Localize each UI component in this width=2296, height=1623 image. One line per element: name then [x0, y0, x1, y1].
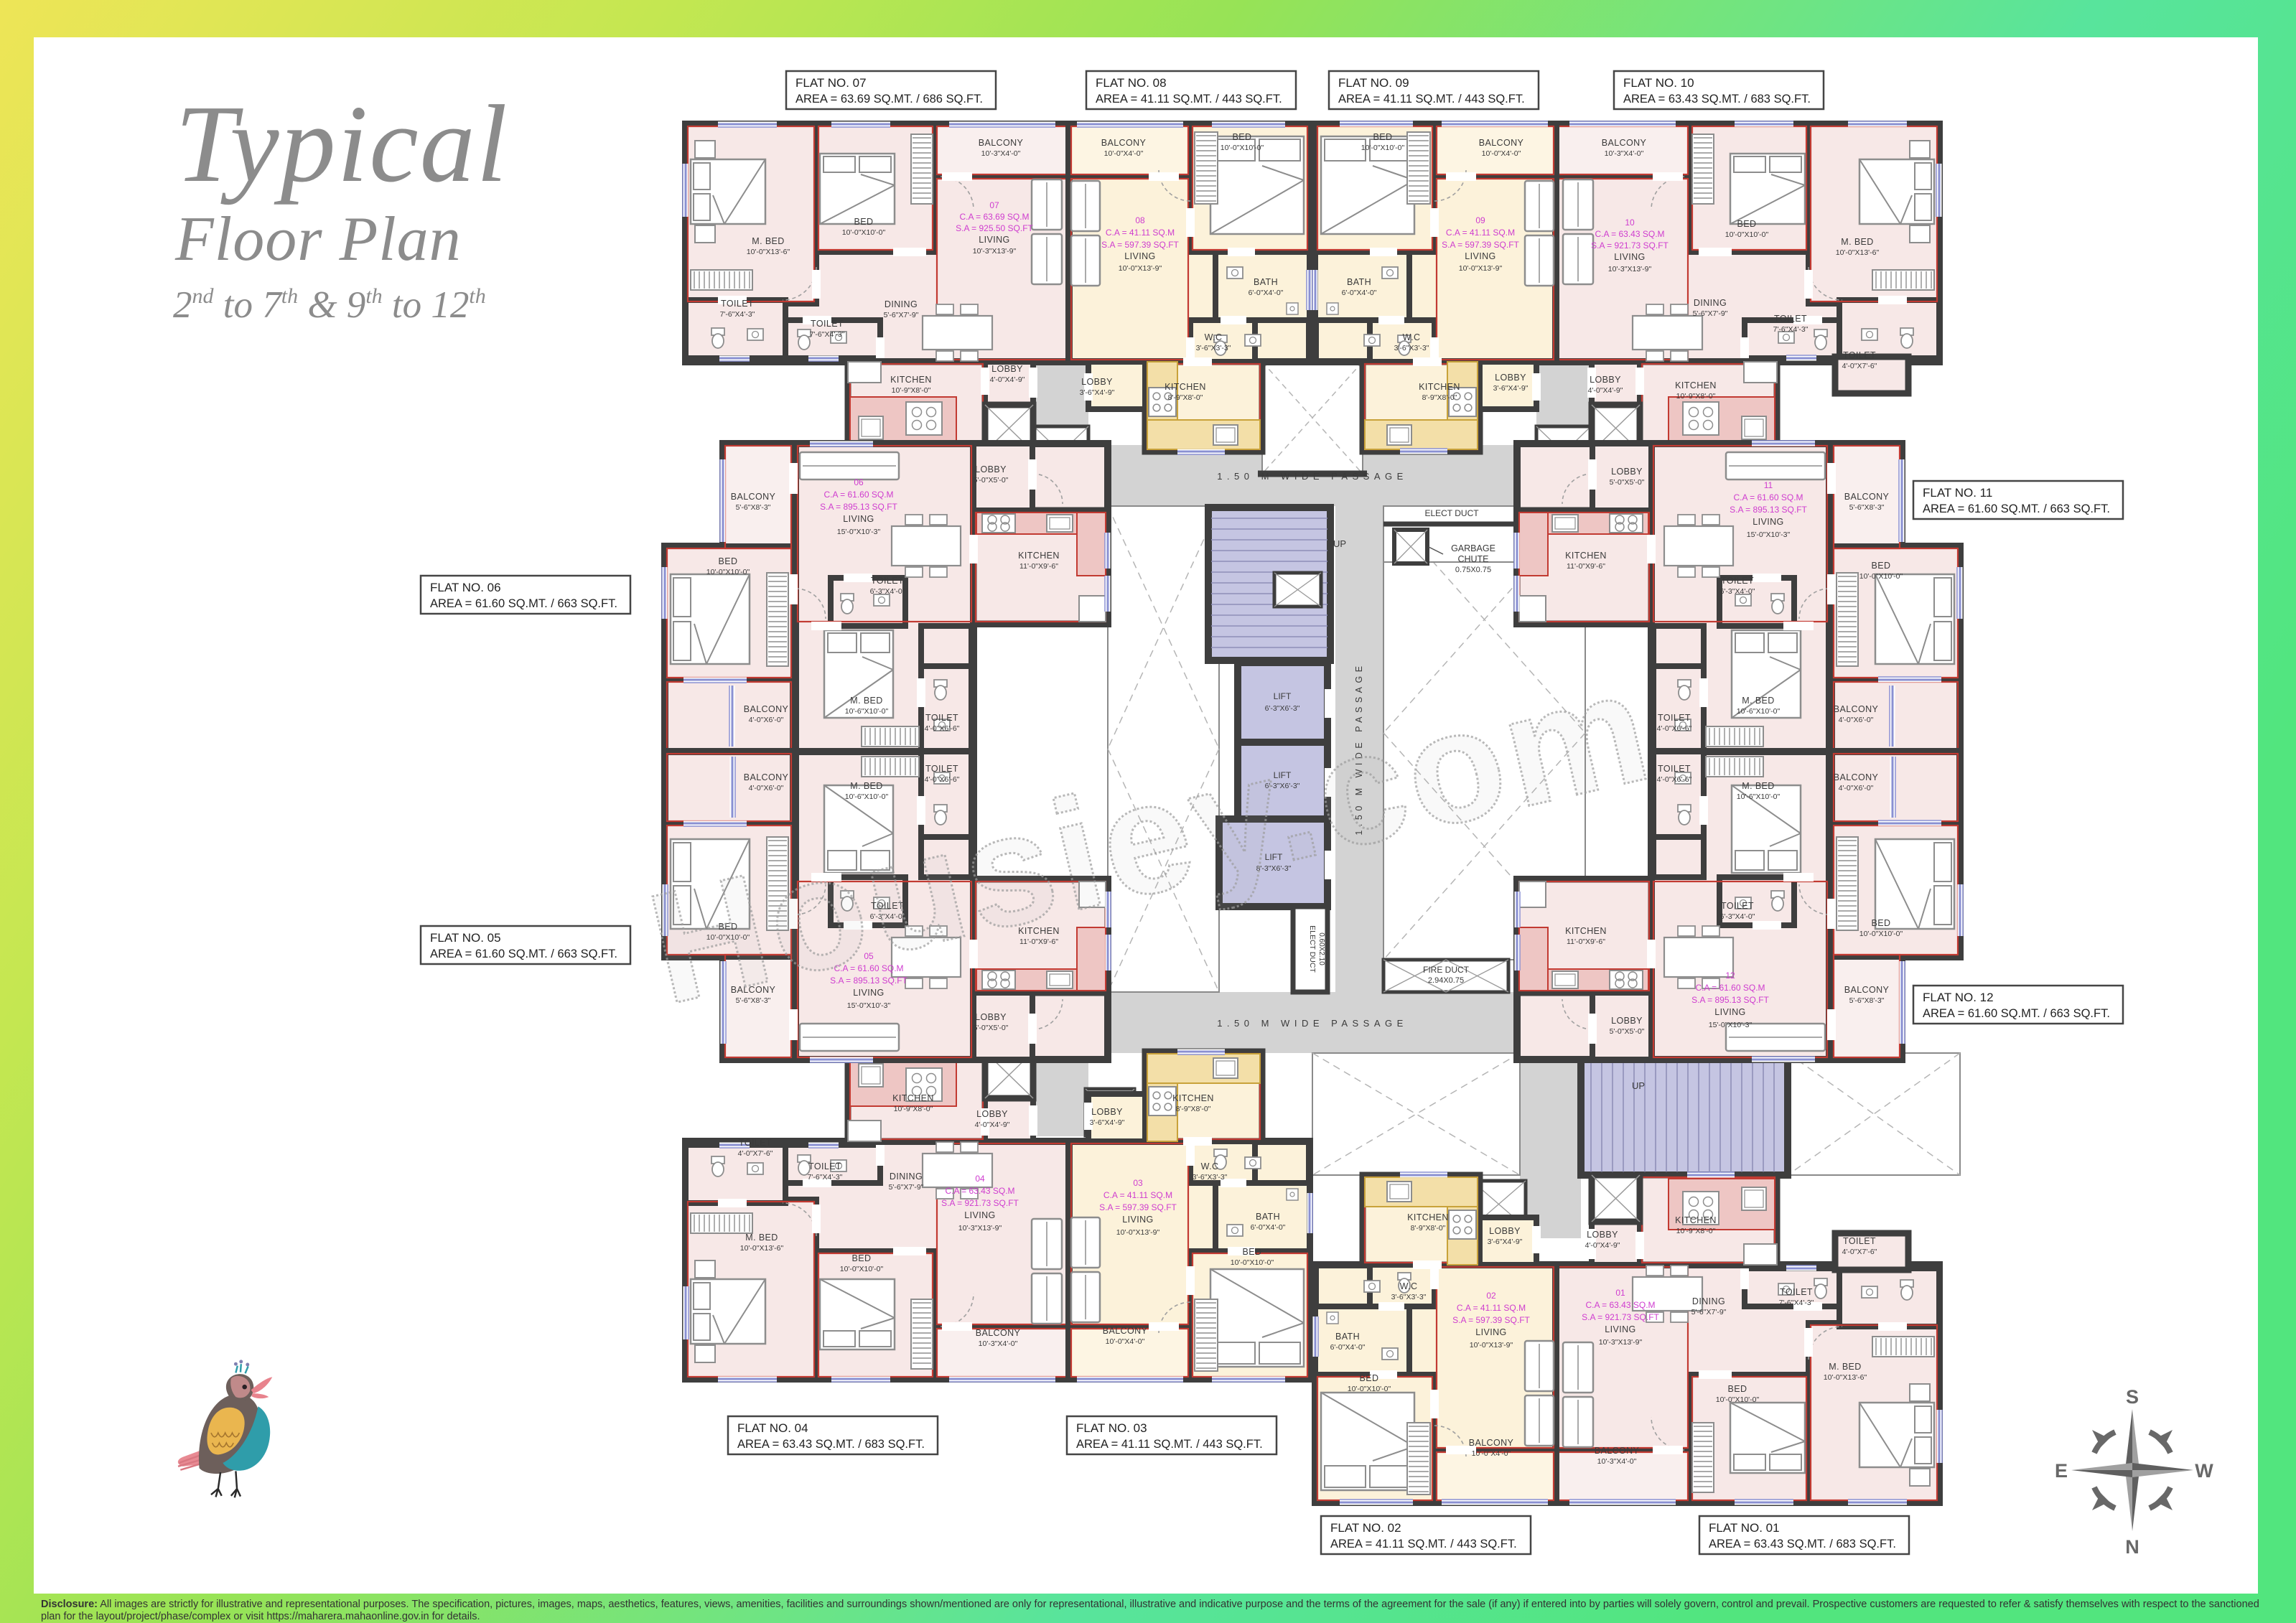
svg-text:10'-0"X13'-9": 10'-0"X13'-9"	[1119, 264, 1162, 273]
svg-text:Typical: Typical	[175, 83, 509, 205]
svg-text:AREA = 63.43 SQ.MT. / 683 SQ.F: AREA = 63.43 SQ.MT. / 683 SQ.FT.	[1709, 1538, 1896, 1550]
svg-text:W.C: W.C	[1400, 1281, 1418, 1291]
svg-text:TOILET: TOILET	[1843, 350, 1876, 360]
svg-text:LIFT: LIFT	[1274, 691, 1292, 701]
svg-text:6'-0"X4'-0": 6'-0"X4'-0"	[1251, 1223, 1286, 1232]
svg-text:TOILET: TOILET	[871, 576, 904, 586]
svg-text:M. BED: M. BED	[745, 1233, 778, 1243]
svg-text:BALCONY: BALCONY	[976, 1328, 1021, 1338]
svg-text:4'-0"X4'-9": 4'-0"X4'-9"	[1585, 1241, 1620, 1250]
svg-text:10'-0"X10'-0": 10'-0"X10'-0"	[1221, 144, 1264, 152]
svg-text:09: 09	[1475, 215, 1485, 225]
svg-text:LIVING: LIVING	[1605, 1324, 1635, 1334]
svg-text:6'-3"X6'-3": 6'-3"X6'-3"	[1265, 704, 1300, 713]
svg-text:3'-6"X4'-9": 3'-6"X4'-9"	[1080, 388, 1115, 397]
svg-text:AREA = 61.60 SQ.MT. / 663 SQ.F: AREA = 61.60 SQ.MT. / 663 SQ.FT.	[1923, 1007, 2110, 1020]
svg-text:4'-0"X6'-0": 4'-0"X6'-0"	[1839, 784, 1874, 792]
svg-text:15'-0"X10'-3": 15'-0"X10'-3"	[847, 1001, 891, 1010]
svg-text:KITCHEN: KITCHEN	[1018, 551, 1060, 561]
svg-text:DINING: DINING	[885, 299, 918, 309]
svg-text:FLAT NO. 03: FLAT NO. 03	[1076, 1421, 1147, 1435]
svg-text:E: E	[2055, 1460, 2068, 1482]
svg-text:TOILET: TOILET	[1780, 1287, 1813, 1297]
svg-text:12: 12	[1725, 970, 1735, 981]
svg-text:10'-3"X4'-0": 10'-3"X4'-0"	[1597, 1457, 1637, 1466]
svg-text:Floor Plan: Floor Plan	[174, 205, 462, 274]
svg-text:S.A = 895.13 SQ.FT: S.A = 895.13 SQ.FT	[1691, 995, 1769, 1005]
svg-text:BALCONY: BALCONY	[1844, 985, 1890, 995]
svg-text:KITCHEN: KITCHEN	[1419, 382, 1460, 392]
svg-text:C.A = 63.69 SQ.M: C.A = 63.69 SQ.M	[959, 212, 1029, 222]
svg-text:3'-6"X4'-9": 3'-6"X4'-9"	[1488, 1238, 1523, 1246]
svg-text:M. BED: M. BED	[1742, 696, 1774, 706]
svg-text:C.A = 61.60 SQ.M: C.A = 61.60 SQ.M	[823, 490, 893, 500]
svg-text:5'-6"X7'-9": 5'-6"X7'-9"	[1691, 1308, 1727, 1316]
svg-text:TOILET: TOILET	[721, 299, 754, 309]
svg-text:FLAT NO. 02: FLAT NO. 02	[1330, 1521, 1401, 1535]
svg-text:6'-0"X4'-0": 6'-0"X4'-0"	[1342, 289, 1377, 297]
svg-text:LIVING: LIVING	[964, 1210, 995, 1220]
svg-text:1.50 M WIDE PASSAGE: 1.50 M WIDE PASSAGE	[1217, 1018, 1408, 1029]
svg-text:4'-0"X6'-6": 4'-0"X6'-6"	[1657, 775, 1692, 784]
svg-text:10'-0"X13'-6": 10'-0"X13'-6"	[747, 248, 790, 256]
svg-text:5'-0"X5'-0": 5'-0"X5'-0"	[1610, 478, 1645, 487]
svg-text:0.75X0.75: 0.75X0.75	[1455, 566, 1491, 574]
svg-text:10'-3"X4'-0": 10'-3"X4'-0"	[979, 1339, 1018, 1348]
svg-text:BALCONY: BALCONY	[1602, 138, 1647, 148]
svg-text:5'-6"X8'-3": 5'-6"X8'-3"	[1849, 996, 1885, 1005]
svg-text:01: 01	[1615, 1288, 1625, 1298]
svg-text:LOBBY: LOBBY	[1611, 1016, 1643, 1026]
svg-text:4'-0"X6'-6": 4'-0"X6'-6"	[925, 775, 960, 784]
svg-text:LIVING: LIVING	[1465, 251, 1495, 261]
svg-text:8'-9"X8'-0": 8'-9"X8'-0"	[1168, 393, 1203, 402]
svg-text:BALCONY: BALCONY	[1469, 1438, 1514, 1448]
svg-text:10'-6"X10'-0": 10'-6"X10'-0"	[845, 707, 889, 716]
svg-text:plan for the layout/project/ph: plan for the layout/project/phase/comple…	[41, 1611, 480, 1622]
svg-text:ELECT DUCT: ELECT DUCT	[1424, 508, 1479, 518]
svg-text:3'-6"X4'-9": 3'-6"X4'-9"	[1090, 1118, 1125, 1127]
svg-text:ELECT DUCT: ELECT DUCT	[1308, 925, 1317, 973]
svg-text:AREA = 63.43 SQ.MT. / 683 SQ.F: AREA = 63.43 SQ.MT. / 683 SQ.FT.	[1623, 93, 1811, 106]
svg-text:S.A = 921.73 SQ.FT: S.A = 921.73 SQ.FT	[1582, 1312, 1659, 1322]
svg-text:04: 04	[975, 1174, 985, 1184]
svg-text:AREA = 61.60 SQ.MT. / 663 SQ.F: AREA = 61.60 SQ.MT. / 663 SQ.FT.	[1923, 502, 2110, 515]
svg-text:DINING: DINING	[1692, 1296, 1725, 1306]
svg-text:15'-0"X10'-3": 15'-0"X10'-3"	[1747, 530, 1791, 539]
svg-text:FLAT NO. 07: FLAT NO. 07	[795, 76, 867, 90]
svg-text:KITCHEN: KITCHEN	[892, 1093, 934, 1103]
svg-text:C.A = 41.11 SQ.M: C.A = 41.11 SQ.M	[1106, 228, 1175, 238]
svg-text:BED: BED	[1360, 1373, 1379, 1383]
svg-text:S.A = 597.39 SQ.FT: S.A = 597.39 SQ.FT	[1442, 240, 1519, 250]
svg-text:S.A = 597.39 SQ.FT: S.A = 597.39 SQ.FT	[1101, 240, 1179, 250]
svg-text:S: S	[2126, 1386, 2139, 1408]
svg-text:BATH: BATH	[1254, 277, 1278, 287]
svg-text:5'-6"X7'-9": 5'-6"X7'-9"	[889, 1183, 924, 1192]
svg-text:AREA = 63.69 SQ.MT. / 686 SQ.F: AREA = 63.69 SQ.MT. / 686 SQ.FT.	[795, 93, 983, 106]
svg-text:7'-6"X4'-3": 7'-6"X4'-3"	[720, 310, 755, 319]
svg-text:FIRE DUCT: FIRE DUCT	[1423, 965, 1470, 975]
svg-text:BALCONY: BALCONY	[1101, 138, 1147, 148]
svg-text:C.A = 61.60 SQ.M: C.A = 61.60 SQ.M	[1733, 492, 1803, 502]
svg-text:TOILET: TOILET	[811, 319, 844, 329]
svg-text:BALCONY: BALCONY	[979, 138, 1024, 148]
svg-text:11: 11	[1764, 480, 1773, 490]
svg-text:10'-0"X4'-0": 10'-0"X4'-0"	[1472, 1449, 1511, 1458]
svg-text:S.A = 597.39 SQ.FT: S.A = 597.39 SQ.FT	[1099, 1202, 1177, 1212]
svg-text:BATH: BATH	[1256, 1212, 1280, 1222]
svg-text:6'-0"X4'-0": 6'-0"X4'-0"	[1330, 1343, 1366, 1352]
svg-text:8'-9"X8'-0": 8'-9"X8'-0"	[1411, 1224, 1446, 1233]
svg-text:M. BED: M. BED	[1742, 781, 1774, 791]
svg-text:M. BED: M. BED	[850, 781, 882, 791]
svg-text:11'-0"X9'-6": 11'-0"X9'-6"	[1567, 562, 1605, 571]
svg-text:M. BED: M. BED	[1841, 237, 1873, 247]
svg-text:5'-6"X7'-9": 5'-6"X7'-9"	[1693, 309, 1728, 318]
svg-text:02: 02	[1486, 1291, 1496, 1301]
svg-text:DINING: DINING	[890, 1171, 923, 1182]
svg-text:6'-3"X4'-0": 6'-3"X4'-0"	[1720, 912, 1755, 921]
svg-text:6'-3"X4'-0": 6'-3"X4'-0"	[870, 587, 905, 596]
svg-text:W.C: W.C	[1205, 332, 1223, 342]
svg-text:AREA = 61.60 SQ.MT. / 663 SQ.F: AREA = 61.60 SQ.MT. / 663 SQ.FT.	[430, 597, 617, 610]
svg-text:3'-6"X4'-9": 3'-6"X4'-9"	[1493, 384, 1529, 393]
svg-text:4'-0"X7'-6": 4'-0"X7'-6"	[1842, 1248, 1877, 1256]
svg-text:10'-3"X4'-0": 10'-3"X4'-0"	[981, 149, 1021, 158]
svg-text:7'-6"X4'-3": 7'-6"X4'-3"	[808, 1173, 843, 1182]
svg-text:S.A = 921.73 SQ.FT: S.A = 921.73 SQ.FT	[1591, 240, 1669, 251]
svg-text:FLAT NO. 12: FLAT NO. 12	[1923, 991, 1994, 1004]
svg-text:10'-0"X10'-0": 10'-0"X10'-0"	[1231, 1258, 1274, 1267]
svg-text:C.A = 41.11 SQ.M: C.A = 41.11 SQ.M	[1457, 1303, 1526, 1313]
svg-text:10'-9"X8'-0": 10'-9"X8'-0"	[1676, 1227, 1716, 1235]
svg-text:4'-0"X4'-9": 4'-0"X4'-9"	[975, 1121, 1010, 1129]
svg-text:KITCHEN: KITCHEN	[890, 375, 932, 385]
svg-text:BALCONY: BALCONY	[1844, 492, 1890, 502]
svg-text:TOILET: TOILET	[1843, 1236, 1876, 1246]
svg-text:FLAT NO. 04: FLAT NO. 04	[737, 1421, 808, 1435]
svg-text:TOILET: TOILET	[1658, 713, 1691, 723]
svg-text:LOBBY: LOBBY	[1081, 377, 1113, 387]
svg-text:TOILET: TOILET	[925, 713, 958, 723]
svg-text:10'-6"X10'-0": 10'-6"X10'-0"	[1737, 707, 1781, 716]
svg-text:M. BED: M. BED	[752, 236, 784, 246]
svg-text:BALCONY: BALCONY	[744, 772, 789, 782]
svg-text:N: N	[2125, 1536, 2139, 1558]
svg-text:3'-6"X3'-3": 3'-6"X3'-3"	[1391, 1293, 1427, 1301]
svg-text:4'-0"X4'-9": 4'-0"X4'-9"	[1588, 386, 1623, 395]
svg-text:LIVING: LIVING	[843, 514, 874, 524]
svg-text:06: 06	[854, 477, 864, 487]
svg-text:BALCONY: BALCONY	[744, 704, 789, 714]
svg-text:BALCONY: BALCONY	[1595, 1446, 1640, 1456]
svg-text:CHUTE: CHUTE	[1457, 554, 1488, 564]
svg-text:BALCONY: BALCONY	[1834, 772, 1879, 782]
svg-text:15'-0"X10'-3": 15'-0"X10'-3"	[1709, 1021, 1753, 1029]
svg-text:7'-6"X4'-3": 7'-6"X4'-3"	[810, 330, 845, 339]
svg-text:10'-6"X10'-0": 10'-6"X10'-0"	[845, 792, 889, 801]
svg-text:TOILET: TOILET	[1721, 901, 1754, 911]
svg-text:10'-3"X13'-9": 10'-3"X13'-9"	[973, 247, 1017, 256]
svg-text:4'-0"X6'-6": 4'-0"X6'-6"	[1657, 724, 1692, 733]
svg-text:BED: BED	[1233, 132, 1252, 142]
svg-text:LOBBY: LOBBY	[975, 464, 1007, 474]
svg-text:2nd to 7th & 9th to 12th: 2nd to 7th & 9th to 12th	[173, 284, 486, 326]
svg-text:C.A = 41.11 SQ.M: C.A = 41.11 SQ.M	[1446, 228, 1515, 238]
svg-text:4'-0"X7'-6": 4'-0"X7'-6"	[738, 1149, 773, 1158]
svg-text:10'-3"X4'-0": 10'-3"X4'-0"	[1605, 149, 1644, 158]
svg-text:0.60X2.10: 0.60X2.10	[1317, 932, 1325, 965]
svg-text:10'-3"X13'-9": 10'-3"X13'-9"	[1608, 265, 1652, 273]
svg-text:10'-0"X13'-9": 10'-0"X13'-9"	[1459, 264, 1503, 273]
svg-text:08: 08	[1135, 215, 1145, 225]
svg-text:LOBBY: LOBBY	[1587, 1230, 1618, 1240]
svg-text:BALCONY: BALCONY	[1834, 704, 1879, 714]
svg-text:10'-9"X8'-0": 10'-9"X8'-0"	[894, 1105, 933, 1113]
svg-text:3'-6"X3'-3": 3'-6"X3'-3"	[1193, 1173, 1228, 1182]
svg-text:KITCHEN: KITCHEN	[1407, 1212, 1449, 1222]
svg-text:W: W	[2195, 1460, 2213, 1482]
svg-text:6'-3"X4'-0": 6'-3"X4'-0"	[1720, 587, 1755, 596]
svg-text:LOBBY: LOBBY	[1611, 467, 1643, 477]
svg-text:GARBAGE: GARBAGE	[1451, 543, 1495, 553]
svg-text:5'-6"X8'-3": 5'-6"X8'-3"	[736, 503, 771, 512]
svg-text:6'-0"X4'-0": 6'-0"X4'-0"	[1249, 289, 1284, 297]
svg-text:10'-0"X10'-0": 10'-0"X10'-0"	[1361, 144, 1405, 152]
svg-text:Disclosure: All images are str: Disclosure: All images are strictly for …	[41, 1599, 2259, 1610]
svg-text:BED: BED	[1243, 1247, 1262, 1257]
svg-text:LIVING: LIVING	[1753, 517, 1783, 527]
svg-text:LOBBY: LOBBY	[991, 364, 1023, 374]
svg-text:UP: UP	[1632, 1080, 1645, 1091]
svg-text:10'-3"X13'-9": 10'-3"X13'-9"	[958, 1224, 1002, 1233]
svg-text:03: 03	[1133, 1178, 1143, 1188]
svg-text:LIVING: LIVING	[979, 235, 1009, 245]
svg-text:7'-6"X4'-3": 7'-6"X4'-3"	[1773, 325, 1809, 334]
svg-text:KITCHEN: KITCHEN	[1172, 1093, 1214, 1103]
svg-text:FLAT NO. 09: FLAT NO. 09	[1338, 76, 1409, 90]
svg-text:LOBBY: LOBBY	[1091, 1107, 1123, 1117]
svg-text:10'-0"X10'-0": 10'-0"X10'-0"	[1859, 930, 1903, 938]
svg-text:FLAT NO. 11: FLAT NO. 11	[1923, 486, 1992, 500]
svg-text:10'-0"X10'-0": 10'-0"X10'-0"	[842, 228, 886, 237]
svg-text:5'-6"X8'-3": 5'-6"X8'-3"	[1849, 503, 1885, 512]
svg-text:4'-0"X6'-0": 4'-0"X6'-0"	[749, 716, 784, 724]
svg-text:W.C: W.C	[1403, 332, 1421, 342]
svg-text:TOILET: TOILET	[1721, 576, 1754, 586]
svg-text:11'-0"X9'-6": 11'-0"X9'-6"	[1567, 937, 1605, 946]
svg-text:AREA = 63.43 SQ.MT. / 683 SQ.F: AREA = 63.43 SQ.MT. / 683 SQ.FT.	[737, 1438, 925, 1451]
svg-text:BED: BED	[1872, 561, 1891, 571]
svg-text:10'-0"X10'-0": 10'-0"X10'-0"	[706, 568, 750, 576]
svg-text:LIVING: LIVING	[1714, 1007, 1745, 1017]
svg-text:10'-6"X10'-0": 10'-6"X10'-0"	[1737, 792, 1781, 801]
svg-text:C.A = 61.60 SQ.M: C.A = 61.60 SQ.M	[1695, 983, 1765, 993]
svg-text:10'-0"X4'-0": 10'-0"X4'-0"	[1482, 149, 1521, 158]
svg-text:1.50 M WIDE PASSAGE: 1.50 M WIDE PASSAGE	[1217, 471, 1408, 482]
svg-text:10'-0"X10'-0": 10'-0"X10'-0"	[1716, 1395, 1760, 1404]
svg-text:AREA = 41.11 SQ.MT. / 443 SQ.F: AREA = 41.11 SQ.MT. / 443 SQ.FT.	[1076, 1438, 1263, 1451]
svg-text:5'-6"X7'-9": 5'-6"X7'-9"	[884, 311, 919, 319]
svg-text:BALCONY: BALCONY	[1103, 1326, 1148, 1336]
svg-text:5'-0"X5'-0": 5'-0"X5'-0"	[1610, 1027, 1645, 1036]
svg-text:BED: BED	[852, 1253, 872, 1263]
svg-text:10'-0"X13'-9": 10'-0"X13'-9"	[1470, 1341, 1513, 1350]
svg-text:S.A = 921.73 SQ.FT: S.A = 921.73 SQ.FT	[941, 1198, 1019, 1208]
svg-text:M. BED: M. BED	[1829, 1362, 1861, 1372]
svg-text:BALCONY: BALCONY	[1479, 138, 1524, 148]
svg-text:LIVING: LIVING	[1124, 251, 1155, 261]
svg-text:AREA = 61.60 SQ.MT. / 663 SQ.F: AREA = 61.60 SQ.MT. / 663 SQ.FT.	[430, 948, 617, 960]
svg-text:10'-0"X10'-0": 10'-0"X10'-0"	[1348, 1385, 1391, 1393]
svg-text:FLAT NO. 05: FLAT NO. 05	[430, 931, 501, 945]
svg-text:10: 10	[1625, 218, 1635, 228]
svg-text:07: 07	[989, 200, 999, 210]
svg-text:10'-3"X13'-9": 10'-3"X13'-9"	[1599, 1338, 1643, 1347]
svg-text:S.A = 925.50 SQ.FT: S.A = 925.50 SQ.FT	[956, 223, 1033, 233]
svg-text:S.A = 895.13 SQ.FT: S.A = 895.13 SQ.FT	[1730, 505, 1807, 515]
svg-text:AREA = 41.11 SQ.MT. / 443 SQ.F: AREA = 41.11 SQ.MT. / 443 SQ.FT.	[1338, 93, 1525, 106]
svg-text:BALCONY: BALCONY	[731, 492, 776, 502]
svg-text:LIVING: LIVING	[1475, 1327, 1506, 1337]
svg-text:BATH: BATH	[1335, 1332, 1360, 1342]
svg-text:3'-6"X3'-3": 3'-6"X3'-3"	[1394, 344, 1429, 352]
svg-text:TOILET: TOILET	[925, 764, 958, 774]
svg-text:FLAT NO. 01: FLAT NO. 01	[1709, 1521, 1780, 1535]
svg-text:C.A = 41.11 SQ.M: C.A = 41.11 SQ.M	[1103, 1190, 1172, 1200]
svg-text:15'-0"X10'-3": 15'-0"X10'-3"	[837, 528, 881, 536]
svg-text:4'-0"X4'-9": 4'-0"X4'-9"	[990, 375, 1025, 384]
svg-text:BATH: BATH	[1347, 277, 1371, 287]
svg-text:2.94X0.75: 2.94X0.75	[1428, 976, 1464, 985]
svg-text:5'-0"X5'-0": 5'-0"X5'-0"	[974, 476, 1009, 485]
svg-text:10'-0"X13'-9": 10'-0"X13'-9"	[1116, 1228, 1160, 1237]
svg-text:FLAT NO. 08: FLAT NO. 08	[1096, 76, 1167, 90]
svg-text:KITCHEN: KITCHEN	[1165, 382, 1206, 392]
svg-text:M. BED: M. BED	[850, 696, 882, 706]
svg-text:LOBBY: LOBBY	[1590, 375, 1621, 385]
svg-text:BED: BED	[1737, 219, 1757, 229]
svg-text:7'-6"X4'-3": 7'-6"X4'-3"	[1779, 1299, 1814, 1307]
svg-text:TOILET: TOILET	[739, 1138, 772, 1148]
svg-text:BED: BED	[1373, 132, 1393, 142]
svg-text:TOILET: TOILET	[808, 1161, 841, 1171]
svg-text:TOILET: TOILET	[1774, 314, 1807, 324]
svg-text:KITCHEN: KITCHEN	[1675, 380, 1717, 390]
svg-text:10'-0"X13'-6": 10'-0"X13'-6"	[1824, 1373, 1867, 1382]
svg-text:KITCHEN: KITCHEN	[1565, 551, 1607, 561]
svg-text:C.A = 63.43 SQ.M: C.A = 63.43 SQ.M	[945, 1186, 1014, 1196]
svg-text:UP: UP	[1333, 538, 1346, 549]
svg-text:S.A = 597.39 SQ.FT: S.A = 597.39 SQ.FT	[1452, 1315, 1530, 1325]
svg-text:4'-0"X6'-0": 4'-0"X6'-0"	[1839, 716, 1874, 724]
svg-text:11'-0"X9'-6": 11'-0"X9'-6"	[1019, 562, 1058, 571]
svg-text:LOBBY: LOBBY	[1495, 373, 1526, 383]
svg-text:10'-0"X13'-6": 10'-0"X13'-6"	[740, 1244, 784, 1253]
svg-text:FLAT NO. 10: FLAT NO. 10	[1623, 76, 1694, 90]
svg-text:DINING: DINING	[1694, 298, 1727, 308]
svg-text:LIVING: LIVING	[1122, 1215, 1153, 1225]
svg-text:10'-0"X4'-0": 10'-0"X4'-0"	[1106, 1337, 1145, 1346]
svg-text:LOBBY: LOBBY	[976, 1109, 1008, 1119]
svg-text:4'-0"X6'-0": 4'-0"X6'-0"	[749, 784, 784, 792]
svg-text:BED: BED	[719, 556, 738, 566]
svg-text:LIVING: LIVING	[1614, 252, 1645, 262]
svg-text:S.A = 895.13 SQ.FT: S.A = 895.13 SQ.FT	[820, 502, 897, 512]
svg-text:4'-0"X6'-6": 4'-0"X6'-6"	[925, 724, 960, 733]
svg-text:TOILET: TOILET	[1658, 764, 1691, 774]
svg-text:10'-9"X8'-0": 10'-9"X8'-0"	[892, 386, 931, 395]
svg-text:C.A = 63.43 SQ.M: C.A = 63.43 SQ.M	[1595, 229, 1664, 239]
svg-text:4'-0"X7'-6": 4'-0"X7'-6"	[1842, 362, 1877, 370]
svg-text:5'-0"X5'-0": 5'-0"X5'-0"	[974, 1024, 1009, 1032]
svg-text:BED: BED	[854, 217, 874, 227]
svg-text:3'-6"X3'-3": 3'-6"X3'-3"	[1196, 344, 1231, 352]
svg-text:KITCHEN: KITCHEN	[1675, 1215, 1717, 1225]
svg-text:8'-9"X8'-0": 8'-9"X8'-0"	[1422, 393, 1457, 402]
svg-text:10'-0"X10'-0": 10'-0"X10'-0"	[840, 1265, 884, 1273]
svg-text:BED: BED	[1872, 918, 1891, 928]
svg-text:10'-9"X8'-0": 10'-9"X8'-0"	[1676, 392, 1716, 401]
svg-text:KITCHEN: KITCHEN	[1565, 926, 1607, 936]
svg-text:C.A = 63.43 SQ.M: C.A = 63.43 SQ.M	[1585, 1300, 1655, 1310]
svg-text:8'-9"X8'-0": 8'-9"X8'-0"	[1176, 1105, 1211, 1113]
svg-text:FLAT NO. 06: FLAT NO. 06	[430, 581, 501, 594]
svg-text:10'-0"X13'-6": 10'-0"X13'-6"	[1836, 248, 1880, 257]
svg-text:10'-0"X10'-0": 10'-0"X10'-0"	[1859, 572, 1903, 581]
svg-text:AREA = 41.11 SQ.MT. / 443 SQ.F: AREA = 41.11 SQ.MT. / 443 SQ.FT.	[1096, 93, 1282, 106]
svg-text:W.C: W.C	[1201, 1161, 1219, 1171]
svg-text:BED: BED	[1728, 1384, 1747, 1394]
svg-text:AREA = 41.11 SQ.MT. / 443 SQ.F: AREA = 41.11 SQ.MT. / 443 SQ.FT.	[1330, 1538, 1517, 1550]
svg-text:LOBBY: LOBBY	[975, 1012, 1007, 1022]
svg-text:10'-0"X4'-0": 10'-0"X4'-0"	[1104, 149, 1144, 158]
svg-text:LOBBY: LOBBY	[1489, 1226, 1521, 1236]
svg-text:10'-0"X10'-0": 10'-0"X10'-0"	[1725, 230, 1769, 239]
